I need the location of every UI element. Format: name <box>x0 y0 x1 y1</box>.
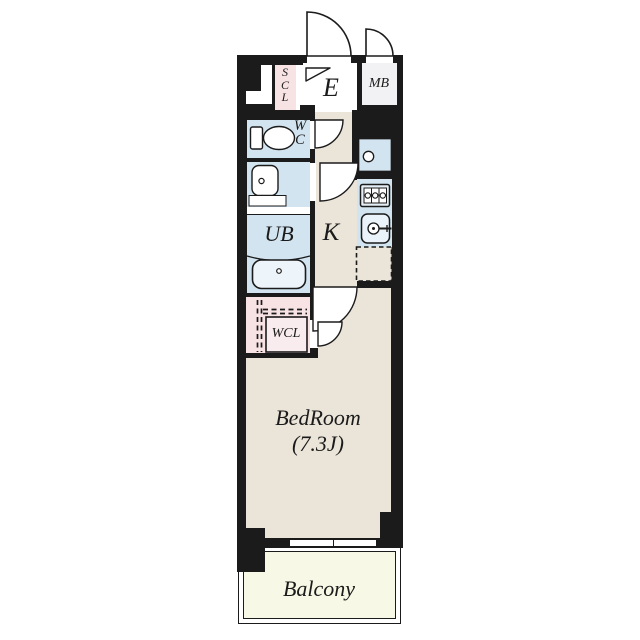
bedroom-label: BedRoom (7.3J) <box>275 405 361 457</box>
toilet-label: W C <box>294 119 306 147</box>
toilet-door-opening <box>310 121 316 149</box>
balcony-window <box>333 539 377 547</box>
entrance-door-swing-icon <box>307 12 351 56</box>
lavatory-bath-divider <box>247 207 310 215</box>
room-walk-in-closet <box>246 297 310 353</box>
meter-box-label: MB <box>369 76 389 91</box>
room-lavatory <box>247 162 310 207</box>
balcony-window <box>289 539 334 547</box>
entrance-label: E <box>323 74 339 103</box>
shoe-closet-door-line <box>296 65 303 110</box>
room-bedroom-upper <box>318 288 391 358</box>
kitchen-label: K <box>323 219 340 247</box>
meterbox-door-swing-icon <box>366 29 393 56</box>
wcl-door-opening <box>310 320 318 348</box>
room-kitchen-hall <box>315 112 357 287</box>
shoe-closet-label: S C L <box>281 66 289 104</box>
unit-bath-label: UB <box>264 222 293 246</box>
lavatory-door-opening <box>310 163 316 201</box>
balcony-label: Balcony <box>283 577 355 601</box>
pillar <box>237 528 265 572</box>
walk-in-closet-label: WCL <box>272 326 301 341</box>
room-bedroom-lower <box>246 512 380 540</box>
wall-segment <box>352 110 358 180</box>
floor-plan: S C L E MB W C UB K WCL BedRoom (7.3J) B… <box>0 0 640 640</box>
wall-notch <box>246 91 272 104</box>
